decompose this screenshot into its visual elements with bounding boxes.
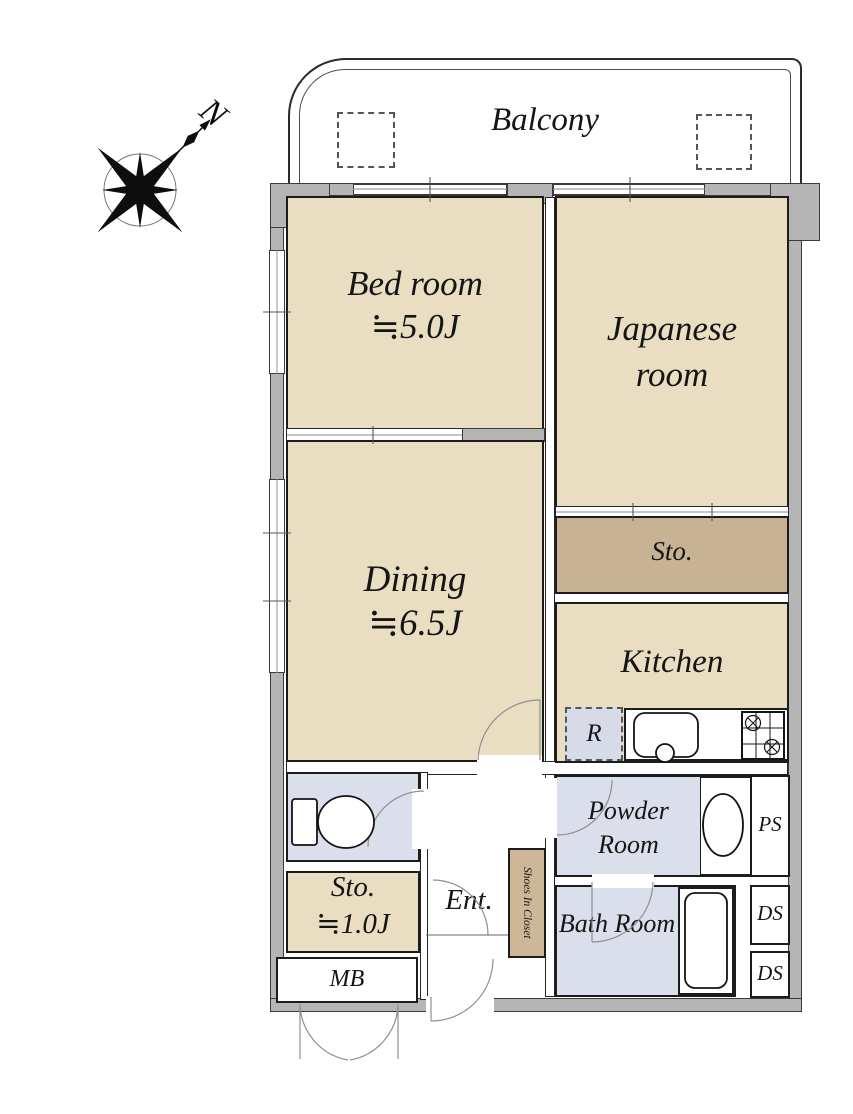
balcony-planter-left xyxy=(337,112,395,168)
door-arcs-meter-box xyxy=(300,1004,398,1060)
storage-label: Sto. xyxy=(555,536,789,567)
door-opening-dining xyxy=(477,755,542,777)
window-dining-left xyxy=(269,479,285,673)
compass-north-label: N xyxy=(192,91,236,136)
floor-plan: N Balcony R Shoes In Closet xyxy=(0,0,853,1114)
door-opening-bath xyxy=(592,874,654,888)
room-toilet xyxy=(286,772,420,862)
duct-space-label-2: DS xyxy=(750,961,790,986)
door-opening-powder xyxy=(543,778,557,838)
pipe-space-label: PS xyxy=(750,812,790,837)
duct-space-label-1: DS xyxy=(750,901,790,926)
entrance-label: Ent. xyxy=(424,884,514,917)
compass-rose: N xyxy=(48,80,238,270)
powder-room-label: Powder Room xyxy=(557,794,700,862)
balcony-label: Balcony xyxy=(445,102,645,139)
storage-small-label: Sto. ≒1.0J xyxy=(286,869,420,943)
dining-name: Dining xyxy=(286,558,544,602)
window-bedroom-left xyxy=(269,250,285,374)
kitchen-label: Kitchen xyxy=(555,644,789,681)
door-opening-entrance xyxy=(426,996,494,1014)
shoes-closet-label: Shoes In Closet xyxy=(521,867,533,939)
wash-basin-box xyxy=(700,777,751,875)
meter-box-label: MB xyxy=(276,966,418,993)
kitchen-counter xyxy=(624,708,789,761)
window-bedroom-balcony xyxy=(353,184,507,195)
wall-center-vertical xyxy=(545,197,555,997)
bedroom-size: ≒5.0J xyxy=(286,305,544,348)
dining-label: Dining ≒6.5J xyxy=(286,558,544,646)
wall-right xyxy=(788,183,802,1012)
balcony-planter-right xyxy=(696,114,752,170)
window-japanese-balcony xyxy=(553,184,705,195)
bedroom-label: Bed room ≒5.0J xyxy=(286,262,544,348)
door-opening-toilet xyxy=(412,789,429,849)
bathtub-box xyxy=(678,887,734,995)
storage-small-size: ≒1.0J xyxy=(286,906,420,943)
refrigerator-label: R xyxy=(586,720,601,748)
japanese-room-label: Japanese room xyxy=(567,306,777,398)
refrigerator-box: R xyxy=(565,707,623,761)
storage-small-name: Sto. xyxy=(286,869,420,906)
bath-room-label: Bath Room xyxy=(557,907,677,941)
bedroom-name: Bed room xyxy=(286,262,544,305)
dining-size: ≒6.5J xyxy=(286,602,544,646)
